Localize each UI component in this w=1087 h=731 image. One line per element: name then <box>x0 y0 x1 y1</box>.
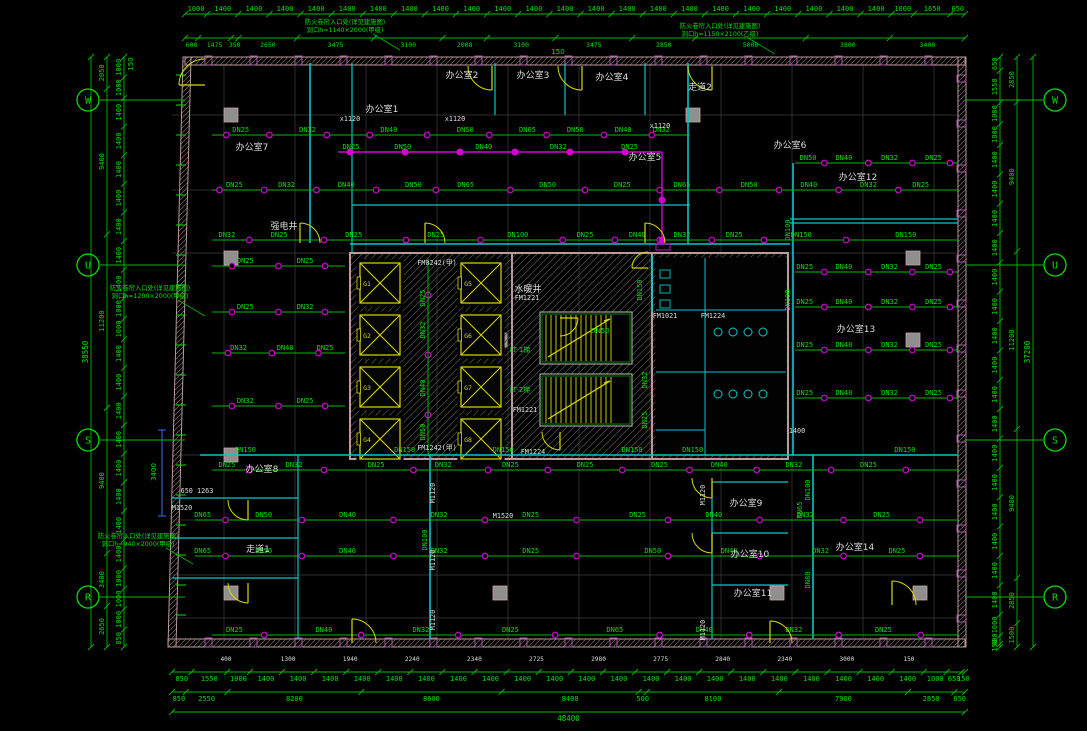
svg-text:走道2: 走道2 <box>688 81 712 93</box>
svg-text:1400: 1400 <box>739 675 756 683</box>
svg-text:1400: 1400 <box>322 675 339 683</box>
svg-text:1400: 1400 <box>418 675 435 683</box>
svg-text:DN32: DN32 <box>881 389 898 397</box>
svg-text:650: 650 <box>951 5 964 13</box>
svg-text:DN25: DN25 <box>796 341 813 349</box>
svg-text:DN25: DN25 <box>860 461 877 469</box>
svg-text:x1120: x1120 <box>445 115 465 123</box>
svg-text:1000: 1000 <box>115 611 123 628</box>
svg-text:1000: 1000 <box>115 300 123 317</box>
hydrant-line: DN25DN50DN40DN32DN25 <box>338 143 670 250</box>
svg-text:DN25: DN25 <box>345 231 362 239</box>
svg-text:LT-1梯: LT-1梯 <box>510 345 531 354</box>
svg-text:1400: 1400 <box>868 5 885 13</box>
svg-text:3400: 3400 <box>98 571 106 588</box>
svg-text:防火卷帘入口处(详见建施图): 防火卷帘入口处(详见建施图) <box>110 283 190 292</box>
svg-text:350: 350 <box>229 41 241 49</box>
svg-text:DN32: DN32 <box>550 143 567 151</box>
svg-text:办公室14: 办公室14 <box>836 541 875 553</box>
svg-text:1400: 1400 <box>115 132 123 149</box>
svg-text:9400: 9400 <box>1008 168 1016 185</box>
svg-text:3400: 3400 <box>150 463 158 481</box>
svg-text:1000: 1000 <box>991 105 999 122</box>
svg-text:1400: 1400 <box>370 5 387 13</box>
svg-text:1400: 1400 <box>991 474 999 491</box>
svg-text:W: W <box>1052 96 1059 107</box>
svg-text:1400: 1400 <box>803 675 820 683</box>
svg-text:DN32: DN32 <box>286 461 303 469</box>
svg-text:9400: 9400 <box>98 153 106 170</box>
svg-text:1400: 1400 <box>774 5 791 13</box>
svg-text:DN50: DN50 <box>405 181 422 189</box>
svg-text:3400: 3400 <box>920 41 936 49</box>
svg-text:1400: 1400 <box>214 5 231 13</box>
svg-text:DN50: DN50 <box>590 327 610 335</box>
svg-text:150: 150 <box>127 57 135 70</box>
svg-text:3100: 3100 <box>513 41 529 49</box>
svg-text:DN25: DN25 <box>873 511 890 519</box>
svg-text:DN150: DN150 <box>894 446 915 454</box>
svg-text:DN25: DN25 <box>651 461 668 469</box>
svg-text:DN25: DN25 <box>925 154 942 162</box>
svg-text:DN32: DN32 <box>237 397 254 405</box>
svg-text:1400: 1400 <box>578 675 595 683</box>
svg-text:DN32: DN32 <box>435 461 452 469</box>
svg-text:DN25: DN25 <box>925 263 942 271</box>
svg-text:9400: 9400 <box>98 472 106 489</box>
svg-text:DN65: DN65 <box>519 126 536 134</box>
svg-text:LT-2梯: LT-2梯 <box>510 385 531 394</box>
svg-text:DN25: DN25 <box>271 231 288 239</box>
svg-text:x1120: x1120 <box>340 115 360 123</box>
svg-text:2850: 2850 <box>1008 71 1016 88</box>
svg-text:2340: 2340 <box>467 656 482 663</box>
svg-text:DN40: DN40 <box>338 181 355 189</box>
svg-text:DN25: DN25 <box>912 181 929 189</box>
svg-text:11200: 11200 <box>1008 330 1016 351</box>
svg-text:150: 150 <box>957 675 970 683</box>
floor-plan-canvas: G1G2G3G4G5G6G7G8DN150DN150DN150DN150DN15… <box>0 0 1087 731</box>
svg-text:1400: 1400 <box>115 488 123 505</box>
svg-text:2240: 2240 <box>405 656 420 663</box>
svg-text:DN40: DN40 <box>705 511 722 519</box>
svg-text:1400: 1400 <box>450 675 467 683</box>
svg-text:FM1224: FM1224 <box>701 312 726 320</box>
svg-text:7900: 7900 <box>835 695 852 703</box>
svg-text:DN25: DN25 <box>368 461 385 469</box>
svg-text:1400: 1400 <box>115 546 123 563</box>
svg-text:1400: 1400 <box>482 675 499 683</box>
svg-text:M1520: M1520 <box>172 504 192 512</box>
svg-text:9400: 9400 <box>1008 495 1016 512</box>
svg-text:DN32: DN32 <box>278 181 295 189</box>
svg-text:1000: 1000 <box>927 675 944 683</box>
svg-text:M1120: M1120 <box>699 485 707 505</box>
svg-text:R: R <box>85 593 92 604</box>
svg-text:M1120: M1120 <box>699 620 707 640</box>
svg-text:DN25: DN25 <box>343 143 360 151</box>
svg-text:DN32: DN32 <box>641 372 649 389</box>
svg-text:1400: 1400 <box>991 591 999 608</box>
svg-text:G7: G7 <box>464 384 472 392</box>
svg-text:1400: 1400 <box>991 445 999 462</box>
svg-text:办公室3: 办公室3 <box>517 69 550 81</box>
svg-text:DN25: DN25 <box>226 181 243 189</box>
svg-text:48400: 48400 <box>557 714 580 723</box>
svg-text:办公室7: 办公室7 <box>236 141 269 153</box>
svg-text:FM1242(甲): FM1242(甲) <box>417 444 457 452</box>
svg-text:2725: 2725 <box>529 656 544 663</box>
svg-text:DN25: DN25 <box>237 257 254 265</box>
svg-text:W: W <box>85 96 92 107</box>
svg-text:3100: 3100 <box>400 41 416 49</box>
svg-text:DN25: DN25 <box>925 341 942 349</box>
svg-text:R: R <box>1052 593 1059 604</box>
svg-text:1400: 1400 <box>115 190 123 207</box>
svg-text:DN25: DN25 <box>232 126 249 134</box>
svg-text:x1120: x1120 <box>650 122 670 130</box>
svg-text:2340: 2340 <box>777 656 792 663</box>
svg-text:防火卷帘入口处(详见建施图): 防火卷帘入口处(详见建施图) <box>98 531 178 540</box>
svg-text:G1: G1 <box>363 280 371 288</box>
svg-text:G5: G5 <box>464 280 472 288</box>
svg-text:FM1221: FM1221 <box>515 294 540 302</box>
svg-text:DN32: DN32 <box>881 298 898 306</box>
svg-text:1400: 1400 <box>771 675 788 683</box>
svg-text:DN25: DN25 <box>297 257 314 265</box>
svg-text:S: S <box>1052 436 1058 447</box>
svg-text:1400: 1400 <box>991 298 999 315</box>
svg-text:1400: 1400 <box>115 345 123 362</box>
svg-text:DN25: DN25 <box>226 626 243 634</box>
svg-text:150: 150 <box>551 48 564 56</box>
svg-text:DN25: DN25 <box>796 263 813 271</box>
svg-text:DN32: DN32 <box>230 344 247 352</box>
svg-text:DN32: DN32 <box>812 547 829 555</box>
svg-text:DN150: DN150 <box>493 446 514 454</box>
svg-text:DN50: DN50 <box>741 181 758 189</box>
svg-text:M1120: M1120 <box>429 483 437 503</box>
svg-text:FM1224: FM1224 <box>521 448 546 456</box>
svg-text:1400: 1400 <box>258 675 275 683</box>
svg-text:DN32: DN32 <box>785 461 802 469</box>
svg-text:1400: 1400 <box>557 5 574 13</box>
svg-text:DN25: DN25 <box>522 511 539 519</box>
svg-text:650 1263: 650 1263 <box>181 487 214 495</box>
svg-text:2050: 2050 <box>98 64 106 81</box>
svg-text:DN40: DN40 <box>835 341 852 349</box>
door-swing <box>892 581 916 605</box>
svg-text:M1120: M1120 <box>429 610 437 630</box>
svg-text:1400: 1400 <box>290 675 307 683</box>
svg-text:办公室4: 办公室4 <box>596 71 629 83</box>
svg-text:2840: 2840 <box>715 656 730 663</box>
svg-text:办公室1: 办公室1 <box>366 103 399 115</box>
svg-text:1400: 1400 <box>650 5 667 13</box>
svg-text:G2: G2 <box>363 332 371 340</box>
svg-text:1400: 1400 <box>991 533 999 550</box>
svg-text:1400: 1400 <box>899 675 916 683</box>
svg-text:1000: 1000 <box>894 5 911 13</box>
svg-text:DN65: DN65 <box>674 181 691 189</box>
svg-text:5000: 5000 <box>743 41 759 49</box>
svg-text:M1120: M1120 <box>429 550 437 570</box>
svg-text:1400: 1400 <box>277 5 294 13</box>
svg-text:1400: 1400 <box>115 247 123 264</box>
svg-text:1400: 1400 <box>991 269 999 286</box>
svg-text:办公室13: 办公室13 <box>837 323 875 335</box>
svg-text:DN150: DN150 <box>636 279 644 300</box>
svg-text:1400: 1400 <box>707 675 724 683</box>
svg-text:600: 600 <box>186 41 198 49</box>
svg-text:DN65: DN65 <box>457 181 474 189</box>
svg-text:DN50: DN50 <box>644 547 661 555</box>
svg-text:DN25: DN25 <box>614 181 631 189</box>
svg-text:办公室10: 办公室10 <box>731 548 770 560</box>
svg-text:防火卷帘入口处(详见建施图): 防火卷帘入口处(详见建施图) <box>305 17 385 26</box>
door-swing <box>558 66 582 90</box>
svg-text:G8: G8 <box>464 436 472 444</box>
svg-text:2850: 2850 <box>1008 592 1016 609</box>
svg-text:办公室2: 办公室2 <box>446 69 479 81</box>
cad-floor-plan-viewport: G1G2G3G4G5G6G7G8DN150DN150DN150DN150DN15… <box>0 0 1087 731</box>
svg-text:DN150: DN150 <box>394 446 415 454</box>
svg-text:1400: 1400 <box>115 517 123 534</box>
svg-text:1000: 1000 <box>115 79 123 96</box>
svg-text:强电井: 强电井 <box>270 220 297 232</box>
svg-text:DN100: DN100 <box>804 479 812 500</box>
svg-text:DN150: DN150 <box>682 446 703 454</box>
svg-text:洞口h=1140×2000(甲级): 洞口h=1140×2000(甲级) <box>307 25 384 34</box>
svg-text:1400: 1400 <box>525 5 542 13</box>
svg-text:办公室12: 办公室12 <box>839 171 877 183</box>
svg-text:洞口h=940×2000(甲级): 洞口h=940×2000(甲级) <box>102 539 175 548</box>
svg-text:38550: 38550 <box>81 340 90 363</box>
svg-text:2775: 2775 <box>653 656 668 663</box>
svg-text:走道1: 走道1 <box>246 543 270 555</box>
svg-text:DN100: DN100 <box>784 289 792 310</box>
svg-text:1000: 1000 <box>115 321 123 338</box>
svg-text:DN25: DN25 <box>621 143 638 151</box>
svg-text:DN25: DN25 <box>796 298 813 306</box>
svg-text:DN50: DN50 <box>457 126 474 134</box>
svg-text:办公室5: 办公室5 <box>629 151 662 163</box>
svg-text:S: S <box>85 436 91 447</box>
svg-text:DN32: DN32 <box>297 303 314 311</box>
svg-text:DN40: DN40 <box>800 181 817 189</box>
svg-text:办公室9: 办公室9 <box>730 497 763 509</box>
svg-text:DN40: DN40 <box>277 344 294 352</box>
svg-text:150: 150 <box>903 656 914 663</box>
svg-text:DN50: DN50 <box>567 126 584 134</box>
svg-text:1300: 1300 <box>281 656 296 663</box>
svg-text:DN25: DN25 <box>925 298 942 306</box>
svg-text:DN40: DN40 <box>475 143 492 151</box>
svg-text:DN32: DN32 <box>412 626 429 634</box>
svg-text:150: 150 <box>991 639 999 652</box>
svg-text:1940: 1940 <box>343 656 358 663</box>
svg-text:1400: 1400 <box>991 327 999 344</box>
svg-text:DN40: DN40 <box>339 511 356 519</box>
svg-text:DN40: DN40 <box>339 547 356 555</box>
svg-text:1500: 1500 <box>1008 627 1016 644</box>
svg-text:1400: 1400 <box>991 181 999 198</box>
svg-text:DN50: DN50 <box>800 154 817 162</box>
svg-text:3475: 3475 <box>328 41 344 49</box>
svg-text:DN25: DN25 <box>641 412 649 429</box>
svg-text:DN40: DN40 <box>419 380 427 397</box>
svg-text:850: 850 <box>115 632 123 645</box>
svg-text:DN25: DN25 <box>577 231 594 239</box>
svg-text:DN40: DN40 <box>835 298 852 306</box>
svg-text:3000: 3000 <box>839 656 854 663</box>
svg-text:1400: 1400 <box>115 104 123 121</box>
svg-text:8600: 8600 <box>423 695 440 703</box>
svg-text:8400: 8400 <box>562 695 579 703</box>
door-swing <box>228 500 248 520</box>
aux-dim <box>158 430 166 516</box>
svg-text:2980: 2980 <box>591 656 606 663</box>
svg-text:1400: 1400 <box>991 386 999 403</box>
svg-text:DN65: DN65 <box>194 511 211 519</box>
svg-text:1400: 1400 <box>463 5 480 13</box>
svg-text:DN100: DN100 <box>421 529 429 550</box>
svg-text:400: 400 <box>220 656 231 663</box>
svg-text:2850: 2850 <box>656 41 672 49</box>
svg-text:1400: 1400 <box>115 402 123 419</box>
svg-text:850: 850 <box>173 695 186 703</box>
svg-text:DN150: DN150 <box>622 446 643 454</box>
svg-text:1550: 1550 <box>201 675 218 683</box>
svg-text:1000: 1000 <box>115 570 123 587</box>
svg-text:DN25: DN25 <box>629 511 646 519</box>
svg-text:37200: 37200 <box>1023 340 1032 363</box>
svg-text:DN150: DN150 <box>235 446 256 454</box>
svg-text:1400: 1400 <box>339 5 356 13</box>
svg-text:1000: 1000 <box>188 5 205 13</box>
svg-text:DN32: DN32 <box>431 511 448 519</box>
svg-text:1400: 1400 <box>643 675 660 683</box>
svg-text:DN40: DN40 <box>711 461 728 469</box>
svg-text:1400: 1400 <box>401 5 418 13</box>
svg-text:1400: 1400 <box>514 675 531 683</box>
svg-text:DN150: DN150 <box>791 231 812 239</box>
svg-text:650: 650 <box>953 695 966 703</box>
svg-text:洞口h=1200×2000(甲级): 洞口h=1200×2000(甲级) <box>112 291 189 300</box>
svg-text:3800: 3800 <box>840 41 856 49</box>
svg-text:8100: 8100 <box>704 695 721 703</box>
svg-text:1650: 1650 <box>924 5 941 13</box>
svg-text:DN40: DN40 <box>629 231 646 239</box>
svg-text:DN32: DN32 <box>419 322 427 339</box>
svg-text:1400: 1400 <box>743 5 760 13</box>
svg-text:1400: 1400 <box>867 675 884 683</box>
svg-text:1400: 1400 <box>991 239 999 256</box>
svg-text:2550: 2550 <box>198 695 215 703</box>
svg-text:1400: 1400 <box>245 5 262 13</box>
core: G1G2G3G4G5G6G7G8 <box>350 253 788 462</box>
svg-text:1000: 1000 <box>115 591 123 608</box>
svg-text:1400: 1400 <box>386 675 403 683</box>
svg-text:DN40: DN40 <box>315 626 332 634</box>
svg-text:1400: 1400 <box>675 675 692 683</box>
svg-text:1400: 1400 <box>115 161 123 178</box>
svg-text:DN150: DN150 <box>895 231 916 239</box>
svg-text:U: U <box>1052 261 1058 272</box>
svg-text:DN40: DN40 <box>835 154 852 162</box>
svg-text:DN40: DN40 <box>835 389 852 397</box>
svg-text:DN25: DN25 <box>419 290 427 307</box>
svg-text:2850: 2850 <box>923 695 940 703</box>
svg-text:DN25: DN25 <box>889 547 906 555</box>
svg-text:1400: 1400 <box>308 5 325 13</box>
svg-text:1000: 1000 <box>991 617 999 634</box>
svg-text:DN80: DN80 <box>804 572 812 589</box>
svg-text:1000: 1000 <box>991 126 999 143</box>
svg-text:DN32: DN32 <box>299 126 316 134</box>
svg-text:办公室11: 办公室11 <box>734 587 772 599</box>
svg-text:DN50: DN50 <box>255 511 272 519</box>
svg-text:1475: 1475 <box>207 41 223 49</box>
svg-text:2008: 2008 <box>457 41 473 49</box>
svg-text:DN25: DN25 <box>796 389 813 397</box>
svg-text:防火卷帘入口处(详见建施图): 防火卷帘入口处(详见建施图) <box>680 21 760 30</box>
svg-text:1400: 1400 <box>991 357 999 374</box>
svg-text:DN32: DN32 <box>797 511 814 519</box>
svg-text:DN25: DN25 <box>502 626 519 634</box>
svg-text:DN32: DN32 <box>218 231 235 239</box>
svg-text:DN32: DN32 <box>674 231 691 239</box>
svg-text:DN50: DN50 <box>539 181 556 189</box>
svg-text:1550: 1550 <box>991 78 999 95</box>
svg-text:1400: 1400 <box>546 675 563 683</box>
svg-text:DN32: DN32 <box>881 341 898 349</box>
svg-text:办公室8: 办公室8 <box>246 463 279 475</box>
svg-text:DN25: DN25 <box>502 461 519 469</box>
svg-text:DN25: DN25 <box>218 461 235 469</box>
svg-text:650: 650 <box>991 57 999 70</box>
svg-text:U: U <box>85 261 91 272</box>
svg-text:FM0242(甲): FM0242(甲) <box>417 259 457 267</box>
svg-text:DN40: DN40 <box>615 126 632 134</box>
svg-text:FM1021: FM1021 <box>653 312 678 320</box>
svg-text:1400: 1400 <box>991 151 999 168</box>
svg-text:DN65: DN65 <box>194 547 211 555</box>
svg-text:1400: 1400 <box>991 415 999 432</box>
svg-text:DN40: DN40 <box>835 263 852 271</box>
svg-text:DN100: DN100 <box>507 231 528 239</box>
svg-text:3475: 3475 <box>586 41 602 49</box>
svg-text:办公室6: 办公室6 <box>774 139 807 151</box>
svg-text:1400: 1400 <box>835 675 852 683</box>
svg-text:1400: 1400 <box>837 5 854 13</box>
svg-text:1400: 1400 <box>588 5 605 13</box>
svg-text:DN25: DN25 <box>522 547 539 555</box>
svg-text:1400: 1400 <box>805 5 822 13</box>
svg-text:FM1221: FM1221 <box>513 406 538 414</box>
svg-text:G6: G6 <box>464 332 472 340</box>
svg-text:DN65: DN65 <box>606 626 623 634</box>
svg-text:G3: G3 <box>363 384 371 392</box>
svg-text:M1520: M1520 <box>493 512 513 520</box>
svg-text:DN25: DN25 <box>875 626 892 634</box>
svg-text:1400: 1400 <box>354 675 371 683</box>
svg-text:1400: 1400 <box>712 5 729 13</box>
svg-text:洞口h=1150×2100(乙级): 洞口h=1150×2100(乙级) <box>682 29 759 38</box>
svg-text:DN25: DN25 <box>726 231 743 239</box>
svg-text:1400: 1400 <box>432 5 449 13</box>
svg-text:8200: 8200 <box>286 695 303 703</box>
